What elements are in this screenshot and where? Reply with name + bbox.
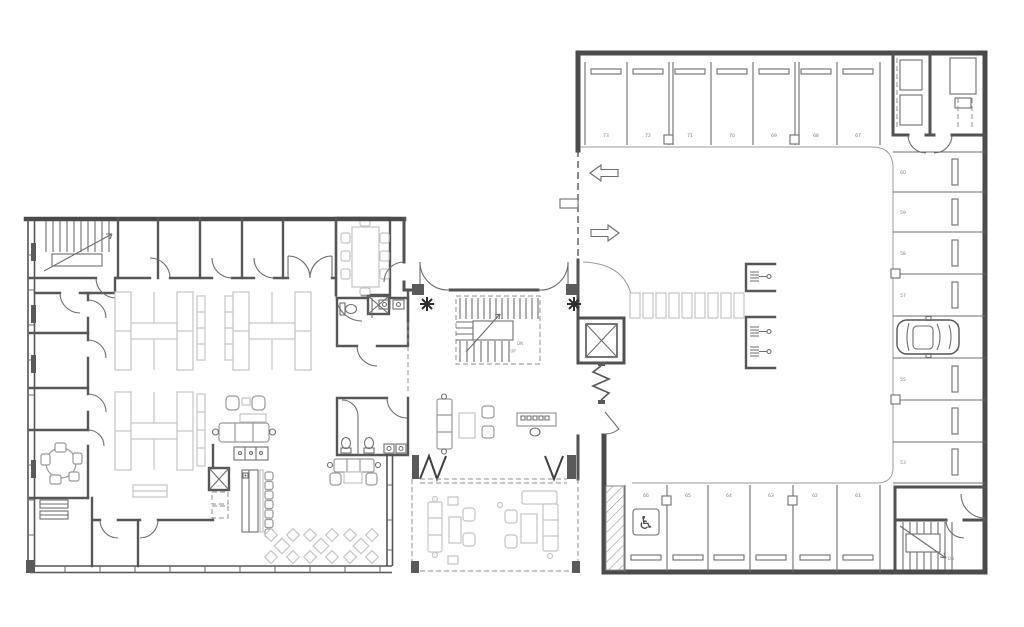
parking-stalls-right: 60 59 58 57 56 55 53 [891, 152, 985, 483]
side-table [242, 398, 250, 405]
elevator-x-icon [586, 324, 617, 357]
stall-number: 73 [603, 133, 609, 139]
parking-garage: 73 72 71 70 69 68 67 60 59 58 57 56 55 5… [560, 53, 985, 572]
desk-cluster [115, 292, 193, 370]
column [790, 135, 799, 144]
stall-number: 72 [645, 133, 651, 139]
column-marker-star-icon [567, 297, 581, 311]
kitchen-counter [234, 447, 268, 460]
equipment [950, 58, 976, 94]
shaft-x-icon [209, 468, 229, 490]
parking-stalls-top: 73 72 71 70 69 68 67 [585, 62, 880, 145]
reception-lounge [437, 394, 556, 454]
column [891, 269, 900, 278]
conference-room [336, 218, 390, 321]
stall-number: 63 [768, 493, 774, 499]
window-mullions [28, 255, 35, 535]
equipment [900, 60, 922, 90]
armchair [482, 406, 494, 418]
floor-plan-page: 73 72 71 70 69 68 67 60 59 58 57 56 55 5… [0, 0, 1024, 627]
window-mullions [65, 566, 380, 573]
arrow-left-icon [590, 165, 618, 181]
outdoor-lounge-left [428, 497, 475, 565]
stall-number: 57 [900, 293, 906, 299]
coffee-table [344, 472, 362, 483]
radiator [31, 355, 36, 373]
column [891, 395, 900, 404]
stall-number: 62 [812, 493, 818, 499]
stair-label: DN [948, 556, 954, 561]
cafe-table-set [265, 529, 300, 564]
kitchen [209, 445, 273, 537]
outdoor-lounge-right [498, 491, 559, 559]
column [662, 496, 671, 505]
window-mullions [387, 485, 393, 550]
arrow-right-icon [591, 225, 619, 241]
stall-number: 69 [771, 133, 777, 139]
bottom-rooms [92, 498, 213, 566]
stair-rail [52, 254, 102, 266]
stall-divider-lines [893, 152, 985, 483]
stall-number: 68 [813, 133, 819, 139]
garage-stairwell: DN [895, 487, 985, 572]
sofa [334, 459, 374, 472]
wall-post [412, 284, 424, 295]
garage-vestibule-door [605, 412, 619, 434]
mechanical-rooms [893, 53, 985, 153]
elevator [578, 318, 624, 363]
room-doors [88, 300, 106, 446]
toilet-icon [340, 303, 357, 315]
stall-number: 53 [900, 460, 906, 466]
lounge-area [213, 396, 276, 442]
entrance-doors [420, 262, 568, 290]
office-stairwell [30, 219, 118, 313]
toilet-icon [341, 438, 351, 454]
coffee-table [459, 413, 475, 438]
cafe-lounge [328, 459, 381, 485]
wheel-stops [591, 69, 873, 74]
bar-island [242, 470, 263, 532]
sofa [219, 423, 269, 442]
column-marker-star-icon [420, 297, 434, 311]
sink-icon [384, 444, 406, 453]
corner-block [26, 560, 35, 573]
wall-post [567, 455, 576, 479]
terrace [411, 479, 580, 573]
stair-label-up: UP [510, 349, 516, 354]
stall-number: 70 [729, 133, 735, 139]
stall-number: 64 [726, 493, 732, 499]
armchair [226, 396, 239, 410]
stall-number: 58 [900, 251, 906, 257]
stair-rail [906, 534, 940, 552]
equipment [955, 98, 971, 108]
radiator [31, 243, 36, 261]
stair-treads [46, 221, 109, 252]
lobby: DN UP [336, 218, 624, 573]
folding-door-left [420, 456, 446, 479]
cafe-table-set [304, 529, 339, 564]
column [788, 496, 797, 505]
desk-cluster [233, 292, 311, 370]
stall-number: 65 [685, 493, 691, 499]
entry-column [560, 199, 578, 208]
toilet-icon [364, 438, 374, 454]
wheel-stops [952, 159, 958, 475]
wall-post [566, 284, 578, 295]
coffee-table [240, 414, 266, 422]
accordion-door [593, 362, 609, 404]
conference-table [352, 227, 379, 287]
restroom-upper [337, 298, 408, 366]
ramp-hatch [606, 486, 624, 570]
sofa [437, 399, 452, 449]
wheelchair-icon: ♿ [638, 513, 654, 534]
column [664, 135, 673, 144]
main-staircase: DN UP [456, 296, 540, 364]
restroom-lower [337, 398, 408, 455]
stall-number: 60 [900, 170, 906, 176]
radiator [31, 460, 36, 478]
armchair [330, 473, 341, 485]
storage-shelves [40, 500, 68, 519]
armchair [482, 426, 494, 438]
equipment [900, 95, 922, 125]
stall-number: 55 [900, 377, 906, 383]
reception-desk [517, 413, 556, 436]
parked-car [897, 317, 959, 358]
desk-chair [530, 428, 540, 436]
bike-racks [746, 264, 775, 368]
stair-label-down: DN [517, 341, 523, 346]
stall-number: 61 [855, 493, 861, 499]
wall-post [412, 455, 419, 479]
floor-plan-canvas: 73 72 71 70 69 68 67 60 59 58 57 56 55 5… [0, 0, 1024, 627]
folding-door-right [545, 456, 569, 479]
bar-stools [265, 472, 273, 537]
stall-number: 66 [643, 493, 649, 499]
armchair [252, 396, 265, 410]
accessible-parking-symbol: ♿ [633, 509, 659, 535]
radiator [31, 305, 36, 323]
terrace-column [411, 561, 419, 573]
stall-number: 59 [900, 210, 906, 216]
parking-stalls-bottom: 66 65 64 63 62 61 ♿ [625, 485, 880, 572]
cafe-table-set [344, 529, 379, 564]
terrace-column [572, 561, 580, 573]
office-partitions [116, 219, 336, 295]
meeting-room-round [41, 443, 82, 484]
storage-lockers [630, 293, 744, 318]
cafe-tables [265, 529, 379, 564]
stall-number: 71 [687, 133, 693, 139]
desk-cluster [115, 392, 193, 470]
stall-number: 67 [855, 133, 861, 139]
armchair [366, 473, 377, 485]
